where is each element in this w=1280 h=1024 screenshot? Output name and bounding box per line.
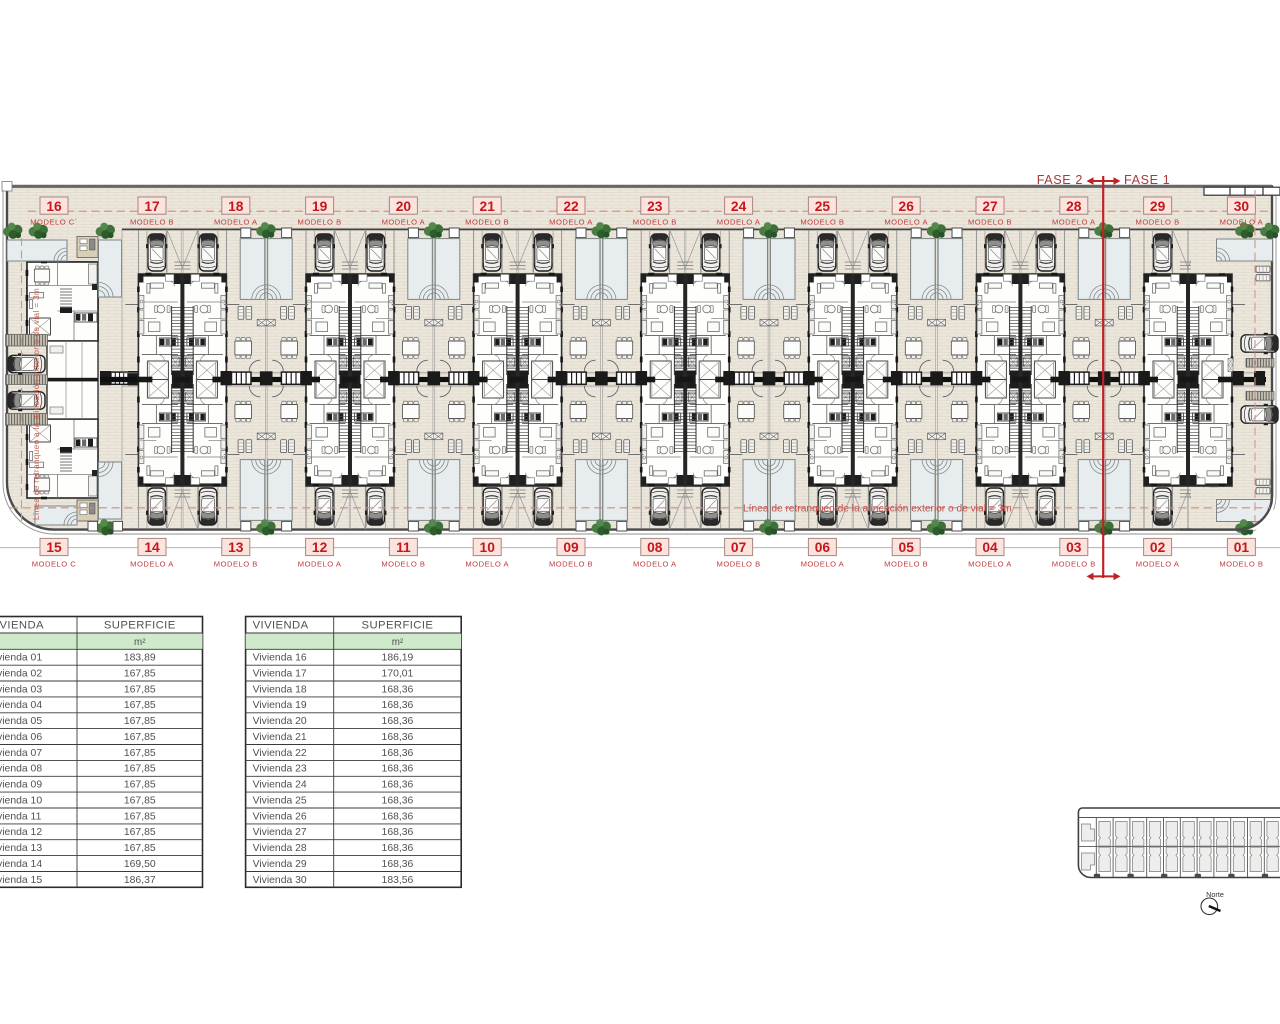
svg-text:167,85: 167,85 [124,684,156,695]
svg-text:24: 24 [731,199,747,214]
svg-text:04: 04 [982,540,998,555]
svg-text:MODELO A: MODELO A [549,217,593,226]
svg-text:10: 10 [480,540,496,555]
svg-text:26: 26 [899,199,915,214]
svg-text:MODELO B: MODELO B [465,217,509,226]
svg-text:14: 14 [144,540,160,555]
svg-text:Vivienda 11: Vivienda 11 [0,811,42,822]
svg-text:SUPERFICIE: SUPERFICIE [362,620,434,632]
svg-text:168,36: 168,36 [382,684,414,695]
svg-text:MODELO B: MODELO B [633,217,677,226]
svg-text:m²: m² [392,637,404,648]
svg-text:16: 16 [46,199,62,214]
svg-text:09: 09 [563,540,579,555]
svg-text:167,85: 167,85 [124,843,156,854]
svg-text:05: 05 [899,540,915,555]
svg-text:28: 28 [1066,199,1082,214]
svg-text:FASE 1: FASE 1 [1124,173,1170,187]
svg-text:17: 17 [144,199,160,214]
svg-text:167,85: 167,85 [124,669,156,680]
svg-text:MODELO A: MODELO A [884,217,928,226]
svg-text:08: 08 [647,540,663,555]
svg-text:MODELO A: MODELO A [801,560,845,569]
svg-text:168,36: 168,36 [382,732,414,743]
svg-text:167,85: 167,85 [124,748,156,759]
svg-text:Vivienda 19: Vivienda 19 [253,700,307,711]
svg-text:29: 29 [1150,199,1166,214]
svg-text:Vivienda 06: Vivienda 06 [0,732,42,743]
svg-text:167,85: 167,85 [124,700,156,711]
svg-text:Vivienda 03: Vivienda 03 [0,684,42,695]
svg-text:MODELO A: MODELO A [130,560,174,569]
svg-text:168,36: 168,36 [382,843,414,854]
svg-text:MODELO A: MODELO A [1220,217,1264,226]
svg-text:Vivienda 14: Vivienda 14 [0,859,42,870]
svg-text:Vivienda 13: Vivienda 13 [0,843,42,854]
svg-text:Vivienda 22: Vivienda 22 [253,748,307,759]
svg-text:167,85: 167,85 [124,716,156,727]
svg-text:Vivienda 01: Vivienda 01 [0,653,42,664]
svg-text:167,85: 167,85 [124,811,156,822]
svg-text:30: 30 [1234,199,1250,214]
svg-text:Vivienda 23: Vivienda 23 [253,764,307,775]
svg-text:VIVIENDA: VIVIENDA [0,620,44,632]
svg-text:01: 01 [1234,540,1250,555]
svg-text:Vivienda 28: Vivienda 28 [253,843,307,854]
svg-text:MODELO B: MODELO B [1219,560,1263,569]
svg-text:168,36: 168,36 [382,780,414,791]
svg-text:Vivienda 21: Vivienda 21 [253,732,307,743]
svg-text:Vivienda 25: Vivienda 25 [253,795,307,806]
svg-text:Vivienda 04: Vivienda 04 [0,700,42,711]
svg-text:Vivienda 07: Vivienda 07 [0,748,42,759]
svg-text:Vivienda 05: Vivienda 05 [0,716,42,727]
svg-text:MODELO B: MODELO B [1136,217,1180,226]
svg-text:Vivienda 12: Vivienda 12 [0,827,42,838]
svg-text:Vivienda 15: Vivienda 15 [0,875,42,886]
svg-text:MODELO B: MODELO B [968,217,1012,226]
svg-text:183,56: 183,56 [382,875,414,886]
svg-text:MODELO A: MODELO A [1136,560,1180,569]
svg-text:168,36: 168,36 [382,859,414,870]
svg-text:Vivienda 26: Vivienda 26 [253,811,307,822]
svg-text:MODELO B: MODELO B [381,560,425,569]
svg-text:168,36: 168,36 [382,811,414,822]
svg-text:MODELO A: MODELO A [1052,217,1096,226]
svg-text:m²: m² [134,637,146,648]
svg-text:03: 03 [1066,540,1082,555]
svg-text:23: 23 [647,199,663,214]
svg-text:25: 25 [815,199,831,214]
svg-text:MODELO C: MODELO C [32,560,77,569]
svg-text:183,89: 183,89 [124,653,156,664]
svg-text:MODELO B: MODELO B [717,560,761,569]
svg-text:19: 19 [312,199,328,214]
svg-text:12: 12 [312,540,328,555]
svg-text:MODELO B: MODELO B [884,560,928,569]
svg-text:MODELO B: MODELO B [214,560,258,569]
svg-text:Vivienda 08: Vivienda 08 [0,764,42,775]
svg-text:167,85: 167,85 [124,764,156,775]
svg-text:Vivienda 09: Vivienda 09 [0,780,42,791]
svg-text:MODELO C´: MODELO C´ [30,217,78,226]
svg-text:170,01: 170,01 [382,669,414,680]
svg-text:MODELO A: MODELO A [382,217,426,226]
svg-text:Vivienda 10: Vivienda 10 [0,795,42,806]
svg-text:Vivienda 18: Vivienda 18 [253,684,307,695]
svg-text:Línea de retranqueo a la aline: Línea de retranqueo a la alineación exte… [32,288,41,520]
svg-text:11: 11 [396,540,411,555]
svg-text:168,36: 168,36 [382,764,414,775]
svg-text:168,36: 168,36 [382,827,414,838]
svg-text:07: 07 [731,540,747,555]
svg-text:167,85: 167,85 [124,780,156,791]
svg-text:MODELO A: MODELO A [633,560,677,569]
svg-text:Línea de retranqueo de la alin: Línea de retranqueo de la alineación ext… [743,504,1012,515]
svg-text:Vivienda 30: Vivienda 30 [253,875,307,886]
svg-text:Vivienda 24: Vivienda 24 [253,780,307,791]
svg-text:21: 21 [480,199,496,214]
svg-text:15: 15 [46,540,62,555]
svg-text:20: 20 [396,199,412,214]
svg-text:167,85: 167,85 [124,795,156,806]
svg-text:Vivienda 29: Vivienda 29 [253,859,307,870]
svg-text:186,37: 186,37 [124,875,156,886]
svg-text:168,36: 168,36 [382,795,414,806]
svg-text:168,36: 168,36 [382,748,414,759]
svg-text:Vivienda 16: Vivienda 16 [253,653,307,664]
svg-text:167,85: 167,85 [124,827,156,838]
svg-text:27: 27 [982,199,998,214]
svg-text:167,85: 167,85 [124,732,156,743]
svg-text:MODELO A: MODELO A [465,560,509,569]
svg-text:MODELO B: MODELO B [298,217,342,226]
svg-text:02: 02 [1150,540,1166,555]
svg-text:186,19: 186,19 [382,653,414,664]
svg-text:Vivienda 17: Vivienda 17 [253,669,307,680]
svg-text:22: 22 [563,199,579,214]
svg-text:MODELO B: MODELO B [800,217,844,226]
svg-text:168,36: 168,36 [382,700,414,711]
svg-text:MODELO A: MODELO A [214,217,258,226]
svg-text:13: 13 [228,540,244,555]
svg-text:MODELO A: MODELO A [968,560,1012,569]
svg-text:MODELO B: MODELO B [130,217,174,226]
svg-text:18: 18 [228,199,244,214]
svg-text:06: 06 [815,540,831,555]
svg-text:MODELO A: MODELO A [717,217,761,226]
svg-text:MODELO B: MODELO B [549,560,593,569]
svg-text:MODELO B: MODELO B [1052,560,1096,569]
svg-text:FASE 2: FASE 2 [1037,173,1083,187]
svg-text:Vivienda 27: Vivienda 27 [253,827,307,838]
svg-text:Vivienda 02: Vivienda 02 [0,669,42,680]
svg-text:169,50: 169,50 [124,859,156,870]
svg-text:MODELO A: MODELO A [298,560,342,569]
svg-text:168,36: 168,36 [382,716,414,727]
svg-text:Vivienda 20: Vivienda 20 [253,716,307,727]
svg-text:SUPERFICIE: SUPERFICIE [104,620,176,632]
svg-text:VIVIENDA: VIVIENDA [253,620,309,632]
